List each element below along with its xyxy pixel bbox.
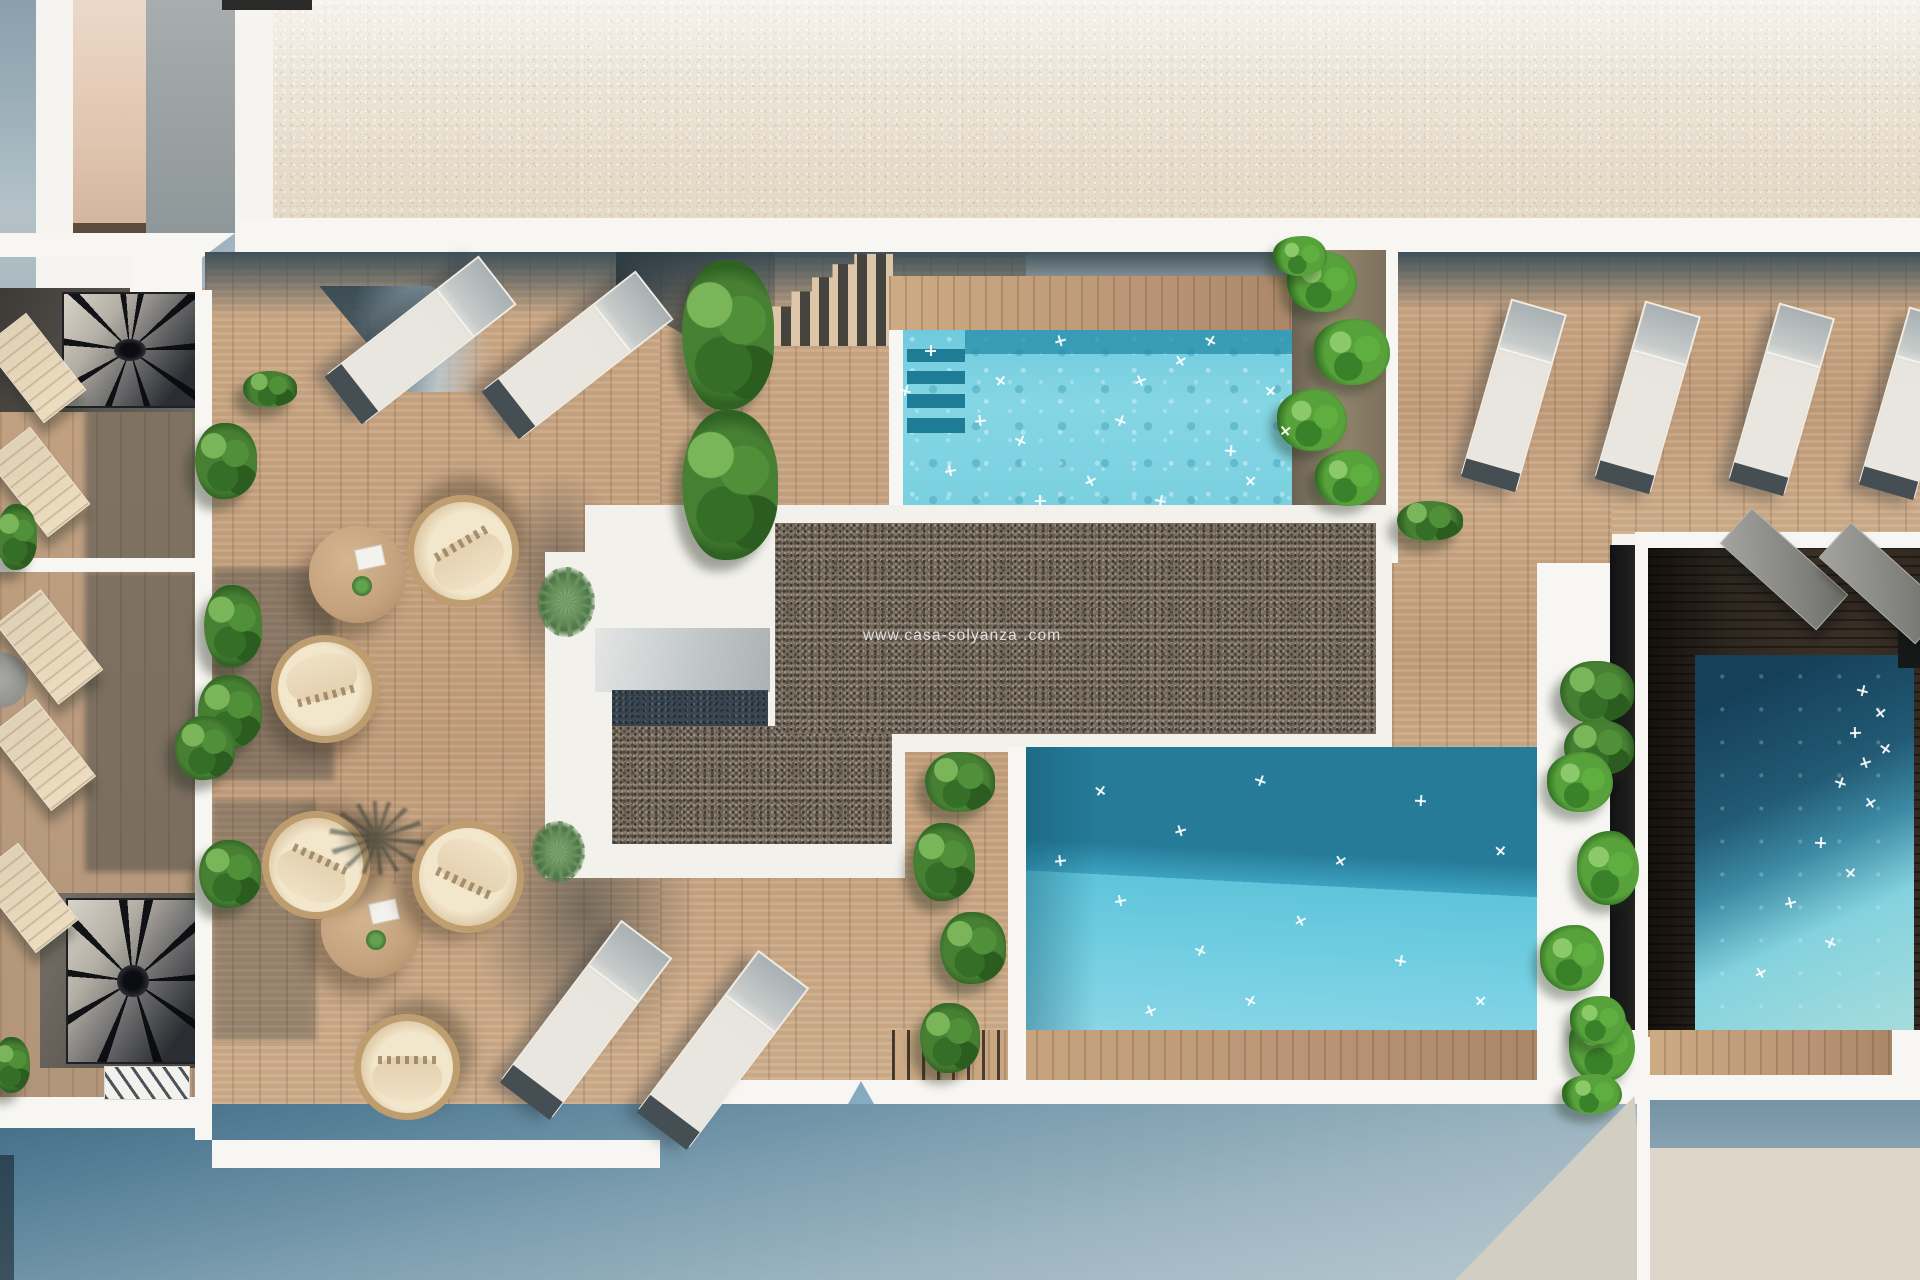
- perimeter-wall-band: [235, 218, 1920, 252]
- bush: [920, 1003, 980, 1073]
- water-sparkle: [1113, 893, 1126, 906]
- bush: [913, 823, 975, 901]
- gravel-plaza: [273, 0, 1920, 220]
- bush: [1397, 501, 1463, 541]
- water-sparkle: [1858, 755, 1872, 769]
- left-facade-dark-edge: [0, 1155, 14, 1280]
- water-sparkle: [898, 383, 911, 396]
- roof-gray-strip: [146, 0, 235, 233]
- pool1-left-coping: [889, 330, 903, 507]
- water-sparkle: [925, 345, 936, 356]
- water-sparkle: [1814, 836, 1826, 848]
- bush: [682, 410, 778, 560]
- water-sparkle: [1173, 823, 1187, 837]
- bush: [925, 752, 995, 812]
- bush: [195, 423, 257, 499]
- watermark-text: www.casa-solyanza .com: [863, 627, 1061, 645]
- agave-plant: [537, 567, 595, 637]
- bush: [682, 260, 774, 410]
- vine-plant: [1547, 752, 1613, 812]
- water-sparkle: [1034, 494, 1045, 505]
- walkway-grate: [104, 1066, 190, 1100]
- wall-shadow-on-right-deck: [1392, 252, 1920, 310]
- lower-facade-shadow-band: [1648, 1100, 1920, 1148]
- south-facade-shadow: [0, 1104, 1650, 1280]
- building-shadow: [85, 405, 207, 570]
- rattan-chair: [354, 1014, 460, 1120]
- table-plant: [352, 576, 372, 596]
- right-terrace-wall-edge: [1610, 545, 1635, 1030]
- water-sparkle: [1855, 683, 1868, 696]
- facade-white-pilaster: [1637, 1037, 1650, 1280]
- vine-plant: [1540, 925, 1604, 991]
- shaded-gravel: [612, 690, 768, 728]
- water-sparkle: [1054, 854, 1066, 866]
- pool2-west-coping: [1008, 747, 1026, 1103]
- agave-plant: [531, 821, 585, 883]
- bush: [940, 912, 1006, 984]
- pool-step: [907, 418, 965, 433]
- vine-plant: [1314, 319, 1390, 385]
- bush: [243, 371, 297, 407]
- right-edge-band: [1892, 1030, 1920, 1080]
- stair-landing: [130, 252, 202, 292]
- south-parapet: [0, 1097, 212, 1128]
- bush: [175, 716, 235, 780]
- gravel-roof-main: www.casa-solyanza .com: [775, 523, 1376, 734]
- concrete-slab: [595, 628, 770, 692]
- pool1-head-boardwalk: [889, 276, 1295, 332]
- bush: [199, 840, 261, 908]
- water-sparkle: [974, 414, 986, 426]
- roof-wood-strip: [73, 0, 146, 233]
- vine-plant: [1570, 996, 1626, 1044]
- water-sparkle: [1053, 333, 1067, 347]
- water-sparkle: [1224, 444, 1236, 456]
- vine-plant: [1277, 389, 1347, 451]
- water-sparkle: [1414, 794, 1426, 806]
- right-terrace-west-border: [1635, 532, 1648, 1103]
- vine-plant: [1273, 236, 1327, 276]
- roof-dark-bar: [222, 0, 312, 10]
- vine-plant: [1577, 831, 1639, 905]
- round-table: [309, 526, 406, 623]
- pool-step: [907, 394, 965, 408]
- water-sparkle: [1154, 494, 1167, 507]
- south-parapet: [660, 1080, 1540, 1104]
- pool3-south-boardwalk: [1648, 1030, 1892, 1077]
- pool-top-shadow-strip: [965, 330, 1292, 354]
- vine-plant: [1562, 1074, 1622, 1114]
- spiral-staircase-south: [66, 898, 200, 1064]
- table-plant: [366, 930, 386, 950]
- bush: [0, 1037, 30, 1093]
- gravel-roof-lower: [612, 726, 892, 844]
- pool-step: [907, 349, 965, 362]
- vine-plant: [1315, 450, 1381, 506]
- water-sparkle: [1783, 895, 1796, 908]
- water-sparkle: [944, 464, 957, 477]
- rooftop-aerial-render: www.casa-solyanza .com: [0, 0, 1920, 1280]
- water-sparkle: [1394, 954, 1407, 967]
- bush: [1560, 661, 1634, 723]
- water-sparkle: [1849, 726, 1860, 737]
- pool-step: [907, 371, 965, 384]
- bush: [204, 585, 262, 667]
- south-parapet: [212, 1140, 660, 1168]
- bush: [0, 504, 37, 570]
- palm-shadow: [329, 801, 425, 875]
